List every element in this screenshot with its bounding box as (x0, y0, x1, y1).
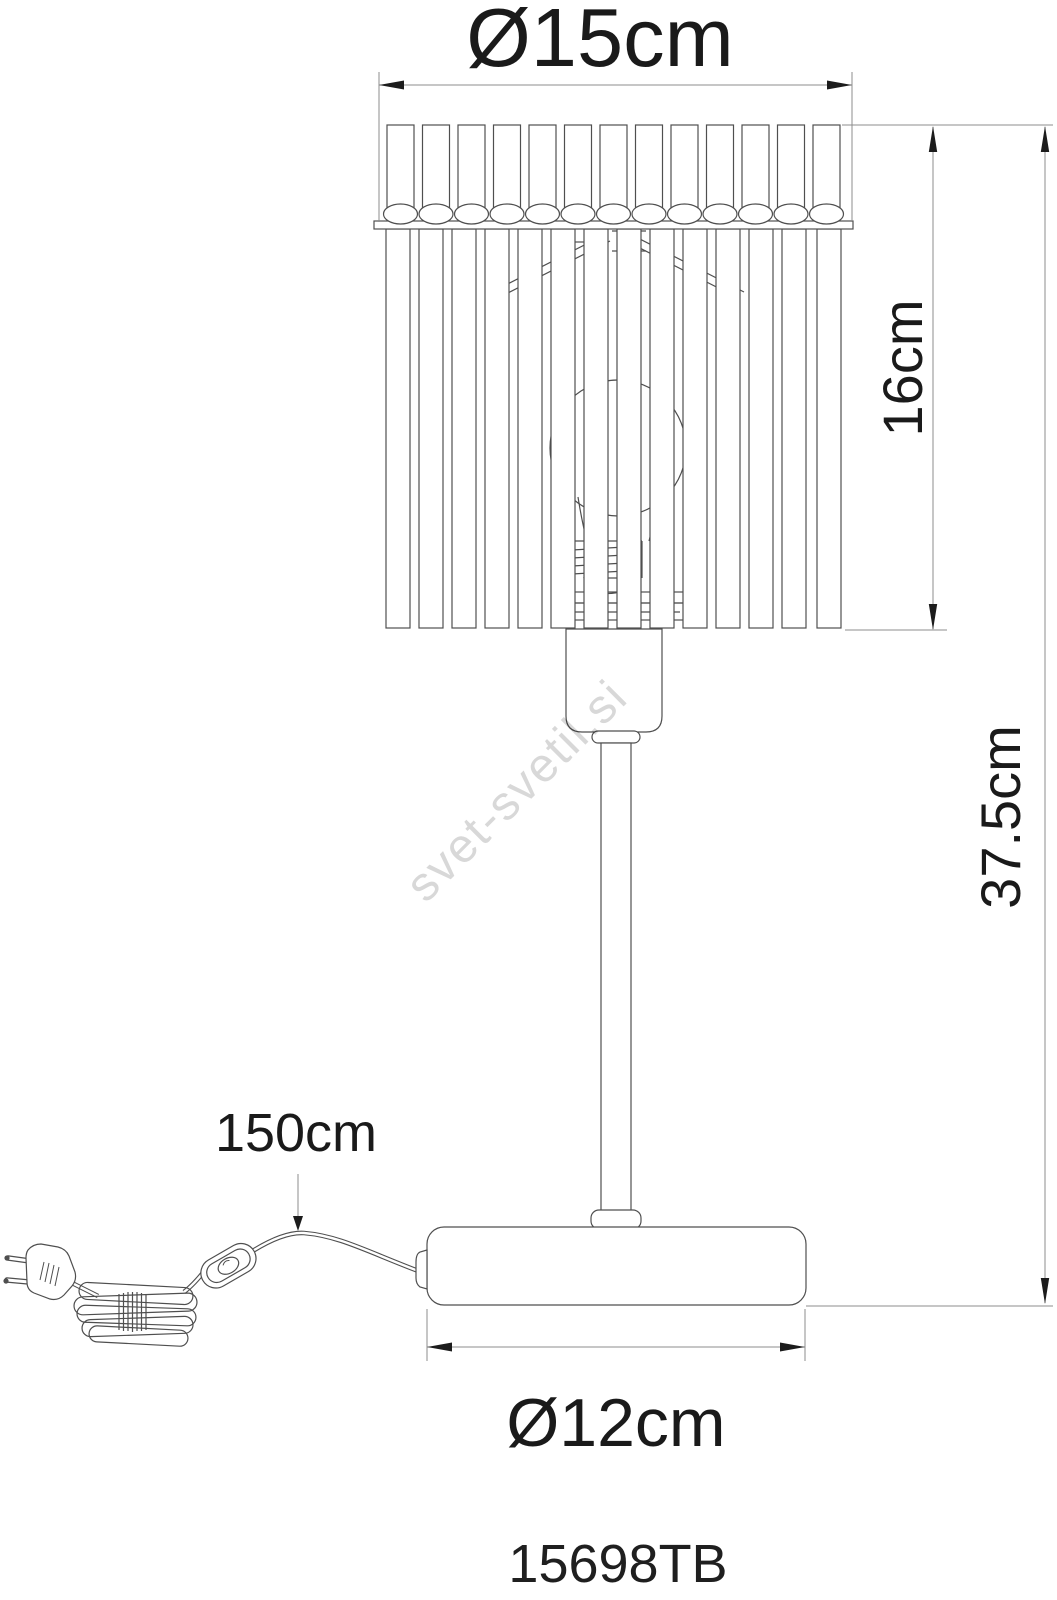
shade-slats (386, 229, 841, 628)
product-code: 15698TB (508, 1534, 727, 1594)
lamp-stem (601, 743, 631, 1212)
lamp-dimension-drawing: Ø15cm 16cm 37.5cm 150cm Ø12cm 15698TB sv… (0, 0, 1057, 1600)
cord-length-label: 150cm (215, 1103, 377, 1163)
technical-drawing-page: Ø15cm 16cm 37.5cm 150cm Ø12cm 15698TB sv… (0, 0, 1057, 1600)
power-plug (3, 1244, 75, 1300)
base-diameter-label: Ø12cm (506, 1385, 725, 1461)
plug-pin-tip (3, 1278, 8, 1283)
total-height-label: 37.5cm (969, 725, 1032, 909)
coil-wrap (119, 1292, 146, 1332)
shade-height-label: 16cm (871, 300, 934, 437)
dimension-lines (298, 72, 1053, 1361)
stem-collar (591, 1210, 641, 1229)
inline-switch (195, 1238, 261, 1293)
power-cord-assembly (3, 1233, 427, 1347)
base-cord-inlet (416, 1250, 427, 1289)
extension-line (427, 1309, 805, 1361)
shade-diameter-label: Ø15cm (466, 0, 734, 84)
plug-pin-tip (4, 1255, 9, 1260)
lamp-base (427, 1227, 806, 1305)
shade-top-rods (384, 125, 844, 224)
